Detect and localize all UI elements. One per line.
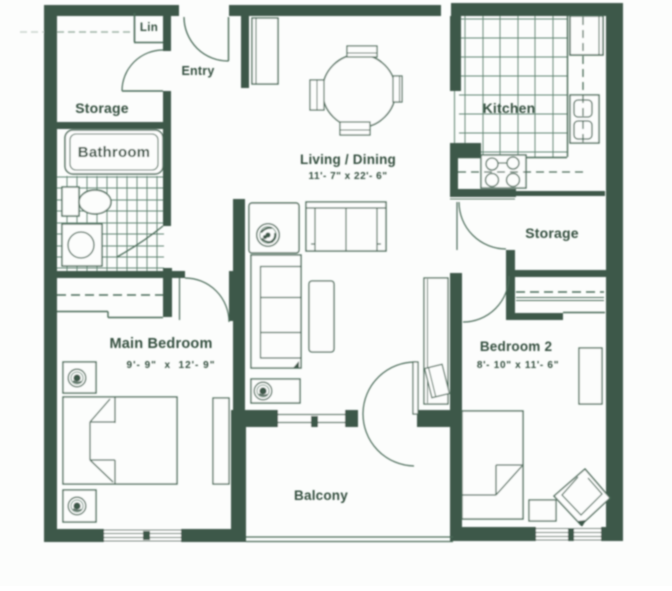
svg-text:Storage: Storage [75,100,129,116]
svg-text:Bedroom 2: Bedroom 2 [480,339,552,354]
svg-text:Kitchen: Kitchen [483,100,536,116]
svg-text:8'- 10" x 11'- 6": 8'- 10" x 11'- 6" [477,360,559,371]
svg-text:Entry: Entry [182,64,215,78]
svg-text:Balcony: Balcony [294,488,348,503]
svg-text:Bathroom: Bathroom [78,144,150,161]
svg-text:Lin: Lin [140,22,158,34]
svg-text:Main Bedroom: Main Bedroom [109,336,212,352]
svg-text:Storage: Storage [525,225,579,241]
svg-text:11'- 7" x 22'- 6": 11'- 7" x 22'- 6" [309,171,388,182]
svg-text:Living / Dining: Living / Dining [300,152,396,167]
svg-text:9'- 9" x 12'- 9": 9'- 9" x 12'- 9" [127,360,216,371]
